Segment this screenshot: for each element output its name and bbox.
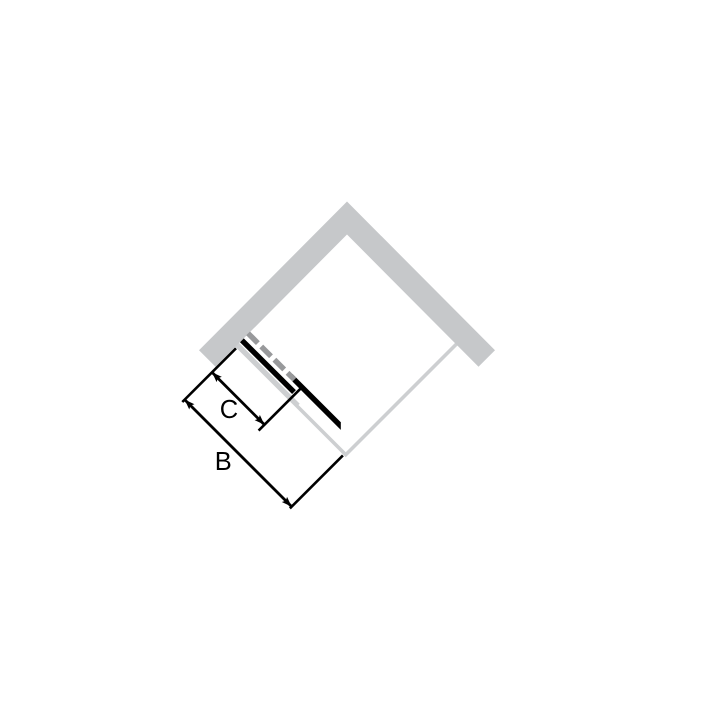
svg-text:B: B [215,448,232,476]
svg-text:C: C [220,396,238,424]
